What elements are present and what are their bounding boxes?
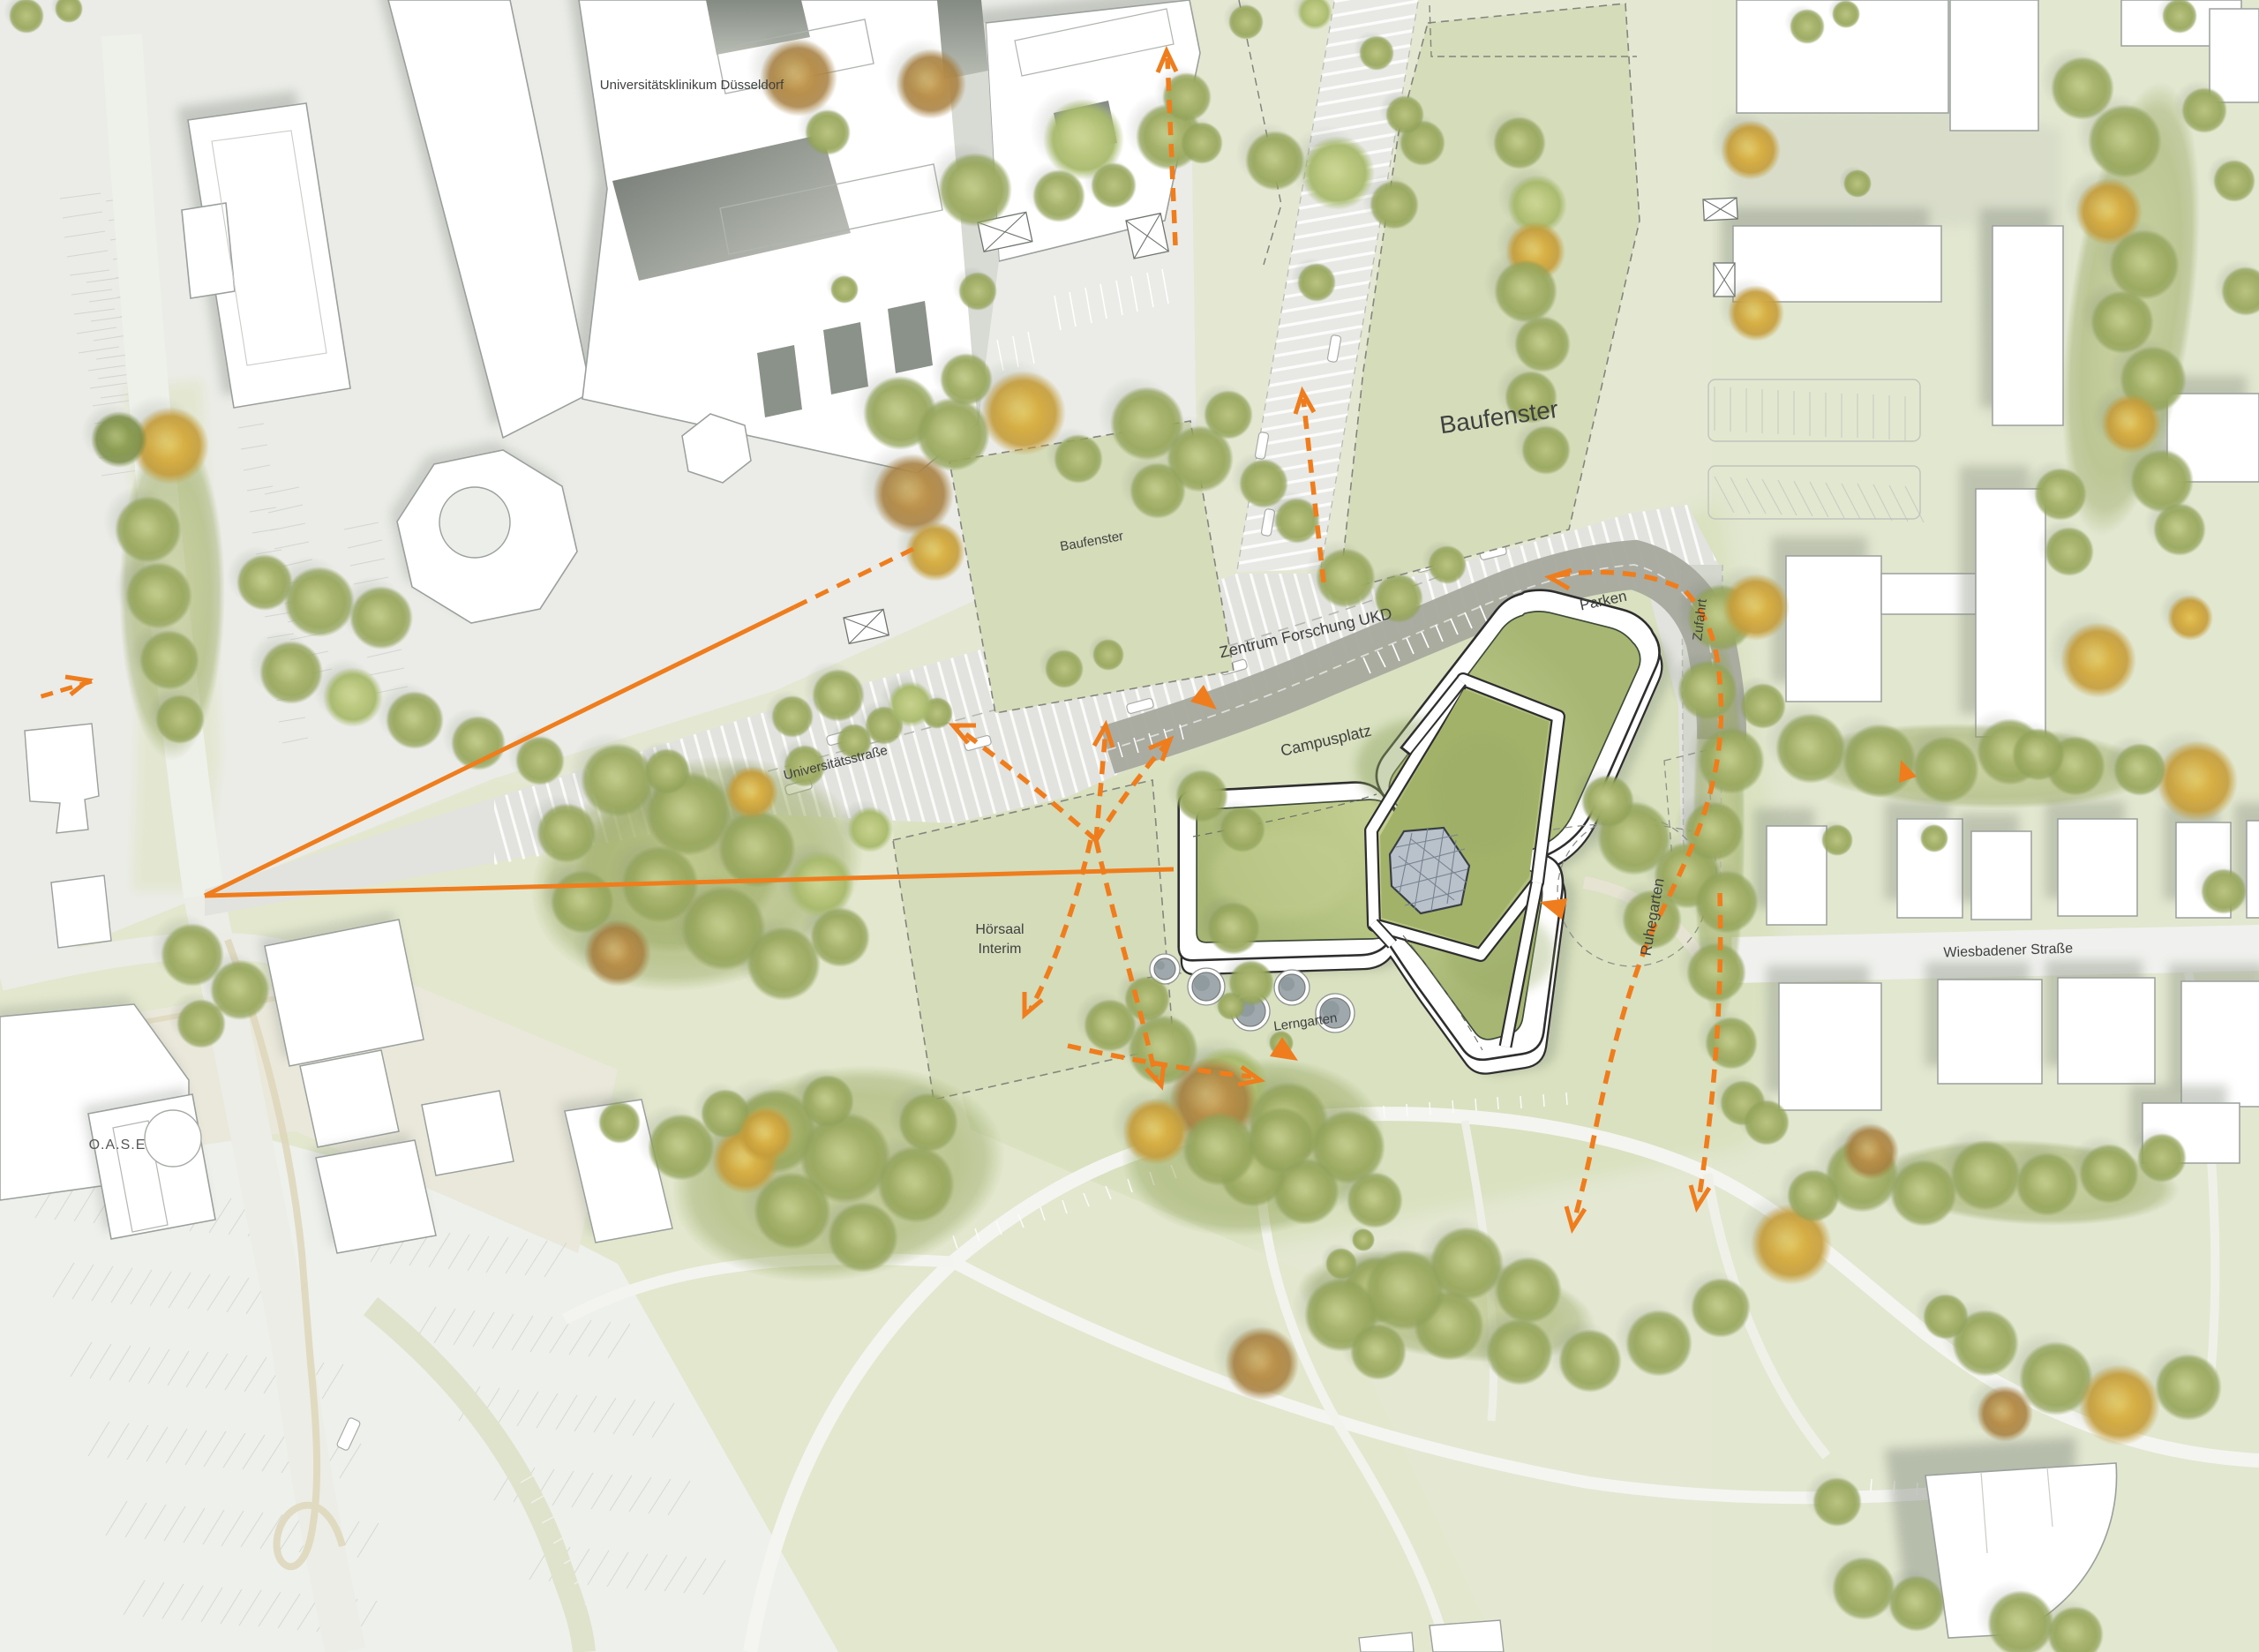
- svg-text:Hörsaal: Hörsaal: [975, 922, 1024, 937]
- svg-text:O.A.S.E: O.A.S.E: [89, 1138, 146, 1153]
- svg-text:Universitätsklinikum Düsseldor: Universitätsklinikum Düsseldorf: [600, 78, 784, 93]
- svg-text:Interim: Interim: [979, 942, 1022, 957]
